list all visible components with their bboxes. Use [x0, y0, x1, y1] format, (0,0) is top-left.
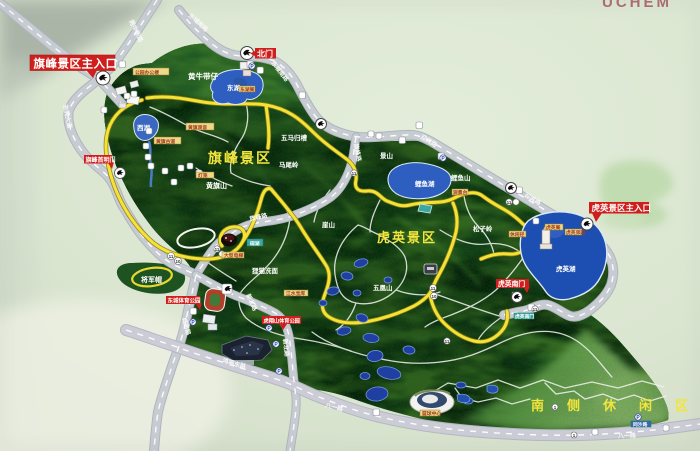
svg-text:旗峰景区: 旗峰景区: [208, 150, 272, 166]
svg-text:马尾岭: 马尾岭: [279, 160, 299, 169]
svg-text:黄旗古道: 黄旗古道: [156, 138, 175, 145]
svg-text:虎英郊园: 虎英郊园: [566, 229, 585, 236]
svg-text:公园办公楼: 公园办公楼: [135, 69, 159, 76]
svg-text:将军帽: 将军帽: [141, 275, 162, 284]
svg-text:虎英景区: 虎英景区: [377, 230, 437, 245]
svg-text:11: 11: [445, 339, 450, 344]
svg-text:10: 10: [431, 294, 437, 299]
svg-text:砚湖: 砚湖: [250, 240, 260, 247]
svg-text:崖山: 崖山: [321, 220, 335, 229]
svg-text:黄旗山: 黄旗山: [206, 181, 227, 190]
svg-text:东湖阁: 东湖阁: [240, 86, 255, 93]
svg-text:旗峰首明门: 旗峰首明门: [86, 156, 116, 164]
svg-text:鲤鱼山: 鲤鱼山: [450, 173, 471, 182]
svg-text:11: 11: [507, 200, 512, 205]
svg-text:南侧休闲区: 南侧休闲区: [531, 398, 700, 413]
svg-text:五凰山: 五凰山: [373, 283, 393, 292]
svg-text:江水宝库: 江水宝库: [286, 290, 305, 297]
svg-text:黄旗观音: 黄旗观音: [188, 124, 207, 131]
svg-text:10: 10: [175, 259, 181, 264]
svg-text:松子岭: 松子岭: [473, 224, 493, 233]
svg-text:黄牛带仔: 黄牛带仔: [188, 71, 218, 81]
svg-text:虎英景区主入口: 虎英景区主入口: [592, 203, 652, 213]
svg-text:虎英南门: 虎英南门: [515, 313, 534, 320]
svg-text:篮球中心: 篮球中心: [421, 410, 441, 417]
svg-text:景山: 景山: [380, 151, 393, 160]
svg-text:旗峰景区主入口: 旗峰景区主入口: [34, 57, 118, 71]
svg-text:五马归槽: 五马归槽: [281, 133, 308, 142]
svg-text:观景台: 观景台: [453, 189, 468, 196]
svg-text:虎英南门: 虎英南门: [498, 279, 525, 288]
svg-text:狸猫洗面: 狸猫洗面: [251, 266, 279, 275]
svg-text:虎翔山体育公园: 虎翔山体育公园: [264, 317, 300, 325]
svg-text:11: 11: [431, 286, 436, 291]
svg-text:11: 11: [533, 307, 538, 312]
svg-text:休闲径: 休闲径: [509, 231, 525, 238]
svg-text:同沙路: 同沙路: [633, 421, 648, 428]
svg-text:大型电梯: 大型电梯: [224, 252, 243, 259]
svg-text:鲤鱼湖: 鲤鱼湖: [414, 179, 435, 188]
svg-text:灯笼: 灯笼: [198, 172, 208, 179]
svg-text:11: 11: [215, 247, 220, 252]
svg-text:虎英湖: 虎英湖: [556, 264, 576, 273]
svg-text:虎英阁: 虎英阁: [546, 224, 561, 231]
svg-text:11: 11: [352, 171, 357, 176]
svg-text:东城体育公园: 东城体育公园: [168, 297, 202, 305]
svg-text:东湖: 东湖: [227, 83, 241, 92]
svg-text:11: 11: [169, 254, 174, 259]
svg-text:北门: 北门: [257, 49, 273, 59]
